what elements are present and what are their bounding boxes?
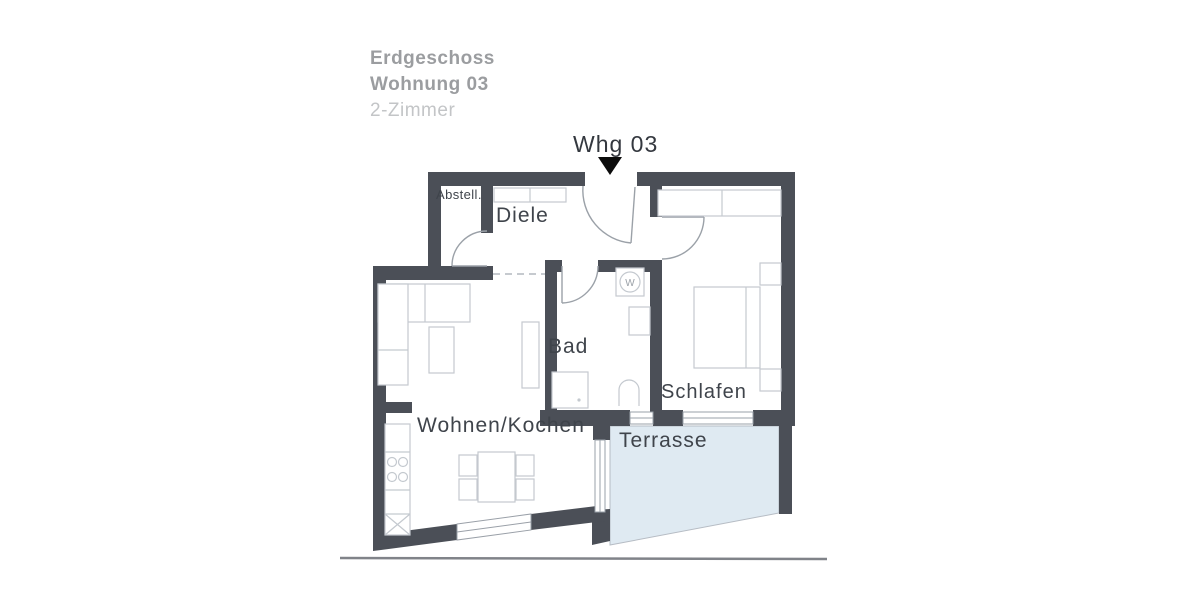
room-label-schlafen: Schlafen	[661, 381, 747, 404]
wall-kitchen-stub	[373, 402, 412, 413]
door-leaf	[631, 187, 635, 243]
door-abstellraum	[452, 231, 487, 266]
furniture-diele	[494, 188, 566, 202]
door-bad	[562, 266, 598, 303]
wardrobe	[658, 190, 781, 216]
nightstand	[760, 263, 781, 285]
wall-abstell-bottom	[441, 266, 493, 280]
wall-terrace-right	[779, 426, 792, 514]
wall-top-right	[637, 172, 795, 186]
shower-drain	[577, 398, 580, 401]
room-label-wohnen: Wohnen/Kochen	[417, 414, 585, 438]
door-schlafen	[662, 217, 704, 259]
wall-schlafen-bottom-pier	[653, 410, 683, 426]
floorplan-page: Erdgeschoss Wohnung 03 2-Zimmer Whg 03	[0, 0, 1200, 600]
wall-right	[781, 172, 795, 426]
door-entrance	[583, 186, 635, 243]
wall-bad-top-stub	[545, 260, 562, 272]
room-label-abstell: Abstell.	[436, 187, 482, 202]
nightstand	[760, 369, 781, 391]
furniture-schlafen	[658, 190, 781, 391]
sideboard	[522, 322, 539, 388]
chair	[516, 455, 534, 476]
washbasin	[629, 307, 650, 335]
sofa-chaise	[378, 284, 408, 385]
door-swing-arc	[583, 186, 631, 243]
wall-abstell-right	[481, 186, 493, 233]
chair	[459, 479, 477, 500]
floor-plan: W	[0, 0, 1200, 600]
washer-letter: W	[625, 278, 635, 289]
shower	[552, 372, 588, 408]
dining-table	[478, 452, 515, 502]
chair	[516, 479, 534, 500]
wall-terrace-left-top	[593, 410, 610, 440]
scan-edge-line	[340, 558, 827, 559]
door-swing-arc	[562, 266, 598, 303]
chair	[459, 455, 477, 476]
coffee-table	[429, 327, 454, 373]
room-label-bad: Bad	[548, 335, 588, 359]
washing-machine-icon: W	[616, 268, 644, 296]
toilet	[619, 380, 639, 406]
kitchen-counter	[385, 424, 410, 535]
door-swing-arc	[452, 231, 487, 266]
room-label-terrasse: Terrasse	[619, 429, 708, 453]
door-swing-arc	[662, 217, 704, 259]
wall-schlafen-bottom-right	[753, 410, 795, 426]
wall-top-left	[428, 172, 585, 186]
room-label-diele: Diele	[496, 204, 549, 228]
bed	[694, 287, 760, 368]
